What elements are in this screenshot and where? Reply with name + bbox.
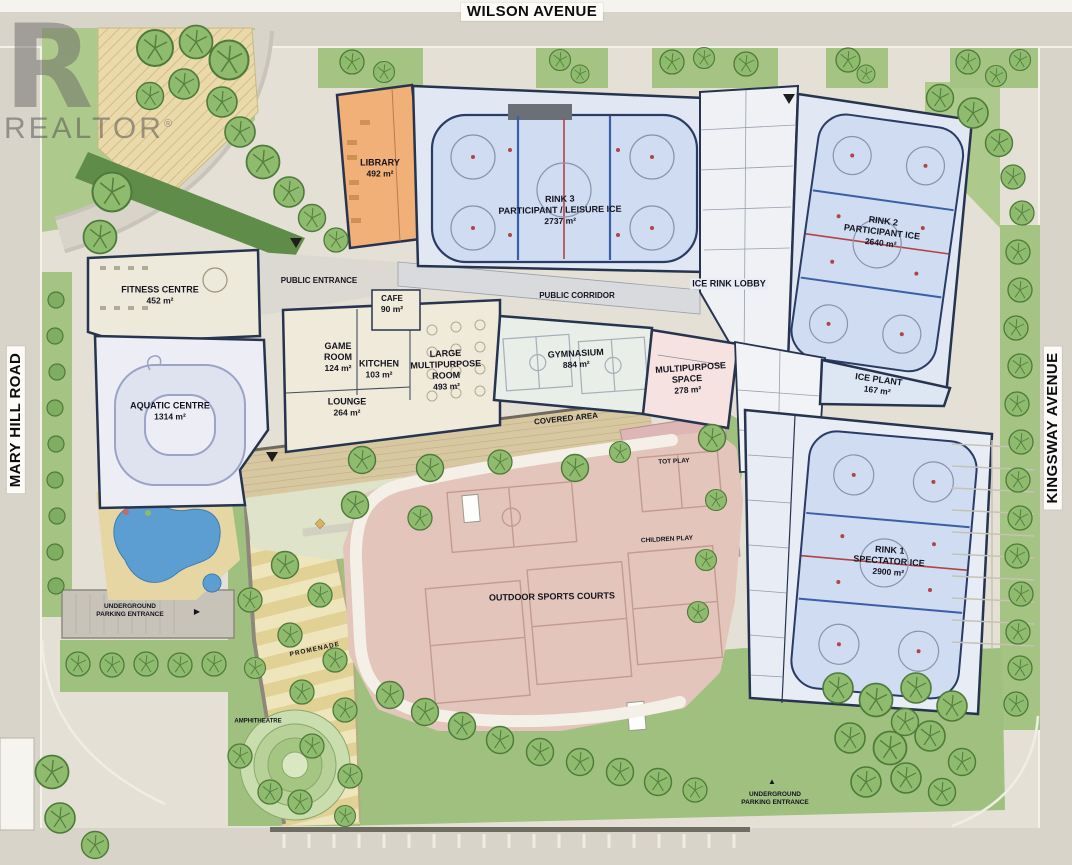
- label-ice-plant: ICE PLANT 167 m²: [853, 371, 903, 399]
- label-public-corridor: PUBLIC CORRIDOR: [539, 291, 615, 301]
- street-label-wilson-avenue: WILSON AVENUE: [461, 3, 603, 21]
- large-multipurpose-name: LARGE MULTIPURPOSE ROOM: [405, 347, 486, 383]
- label-promenade: PROMENADE: [289, 641, 341, 659]
- label-outdoor-sports-courts: OUTDOOR SPORTS COURTS: [489, 590, 615, 603]
- label-aquatic-centre: AQUATIC CENTRE 1314 m²: [130, 400, 210, 421]
- label-cafe: CAFE 90 m²: [381, 294, 403, 314]
- kitchen-area: 103 m²: [359, 369, 399, 379]
- label-kitchen: KITCHEN 103 m²: [359, 358, 399, 379]
- library-area: 492 m²: [360, 168, 400, 178]
- fitness-name: FITNESS CENTRE: [121, 284, 199, 295]
- label-underground-parking-west: UNDERGROUND PARKING ENTRANCE: [96, 603, 163, 619]
- library-name: LIBRARY: [360, 157, 400, 168]
- label-large-multipurpose-room: LARGE MULTIPURPOSE ROOM 493 m²: [405, 347, 486, 393]
- street-label-kingsway-avenue: KINGSWAY AVENUE: [1044, 346, 1062, 509]
- label-rink1: RINK 1 SPECTATOR ICE 2900 m²: [852, 542, 926, 579]
- label-ice-rink-lobby: ICE RINK LOBBY: [690, 279, 768, 290]
- rink3-area: 2737 m²: [499, 215, 622, 228]
- lounge-name: LOUNGE: [328, 396, 367, 407]
- label-rink2: RINK 2 PARTICIPANT ICE 2640 m²: [842, 211, 922, 252]
- label-public-entrance: PUBLIC ENTRANCE: [281, 276, 357, 286]
- parking-south-line2: PARKING ENTRANCE: [741, 799, 808, 807]
- aquatic-name: AQUATIC CENTRE: [130, 400, 210, 411]
- label-library: LIBRARY 492 m²: [360, 157, 400, 178]
- game-room-area: 124 m²: [315, 363, 361, 373]
- parking-arrow-right-icon: ▶: [194, 607, 200, 617]
- parking-south-line1: UNDERGROUND: [741, 791, 808, 799]
- label-gymnasium: GYMNASIUM 884 m²: [547, 347, 604, 371]
- game-room-name: GAME ROOM: [315, 341, 361, 363]
- label-tot-play: TOT PLAY: [658, 457, 690, 467]
- labels-layer: WILSON AVENUE MARY HILL ROAD KINGSWAY AV…: [0, 0, 1072, 865]
- label-multipurpose-space: MULTIPURPOSE SPACE 278 m²: [655, 361, 719, 398]
- cafe-area: 90 m²: [381, 304, 403, 314]
- parking-arrow-up-icon: ▲: [768, 777, 776, 787]
- aquatic-area: 1314 m²: [130, 411, 210, 421]
- parking-west-line1: UNDERGROUND: [96, 603, 163, 611]
- label-amphitheatre: AMPHITHEATRE: [234, 718, 281, 725]
- lounge-area: 264 m²: [328, 407, 367, 417]
- site-plan-canvas: WILSON AVENUE MARY HILL ROAD KINGSWAY AV…: [0, 0, 1072, 865]
- large-multipurpose-area: 493 m²: [406, 380, 486, 393]
- fitness-area: 452 m²: [121, 295, 199, 305]
- parking-west-line2: PARKING ENTRANCE: [96, 611, 163, 619]
- label-lounge: LOUNGE 264 m²: [328, 396, 367, 417]
- kitchen-name: KITCHEN: [359, 358, 399, 369]
- street-label-mary-hill-road: MARY HILL ROAD: [7, 347, 25, 494]
- label-covered-area: COVERED AREA: [534, 411, 599, 427]
- label-rink3: RINK 3 PARTICIPANT / LEISURE ICE 2737 m²: [498, 193, 622, 227]
- label-game-room: GAME ROOM 124 m²: [315, 341, 361, 373]
- label-underground-parking-south: UNDERGROUND PARKING ENTRANCE: [741, 791, 808, 807]
- label-fitness-centre: FITNESS CENTRE 452 m²: [121, 284, 199, 305]
- label-children-play: CHILDREN PLAY: [641, 535, 693, 546]
- cafe-name: CAFE: [381, 294, 403, 304]
